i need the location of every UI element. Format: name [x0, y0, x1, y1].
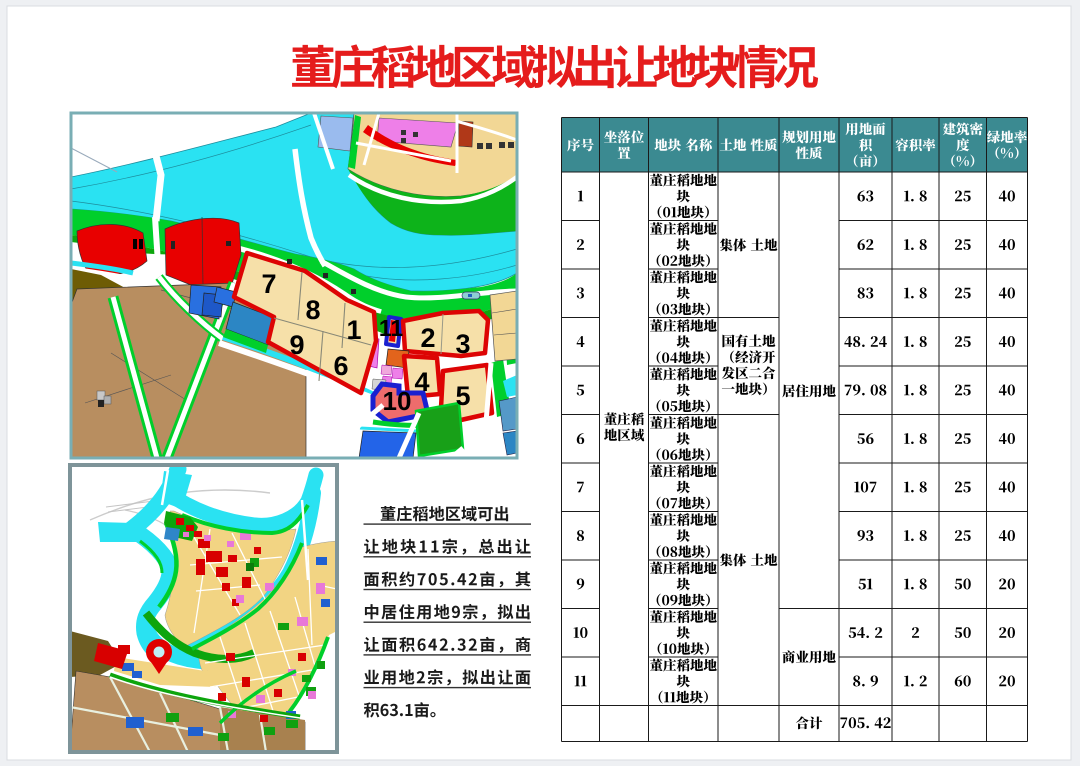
svg-text:5: 5: [455, 381, 470, 411]
svg-text:9: 9: [289, 330, 304, 360]
svg-text:8: 8: [305, 295, 320, 325]
svg-text:1: 1: [346, 315, 361, 345]
svg-text:11: 11: [379, 315, 404, 341]
svg-text:2: 2: [420, 323, 435, 353]
svg-text:7: 7: [261, 269, 276, 299]
svg-text:3: 3: [455, 329, 470, 359]
svg-text:6: 6: [333, 351, 348, 381]
svg-text:4: 4: [414, 367, 429, 397]
svg-text:10: 10: [383, 386, 412, 416]
